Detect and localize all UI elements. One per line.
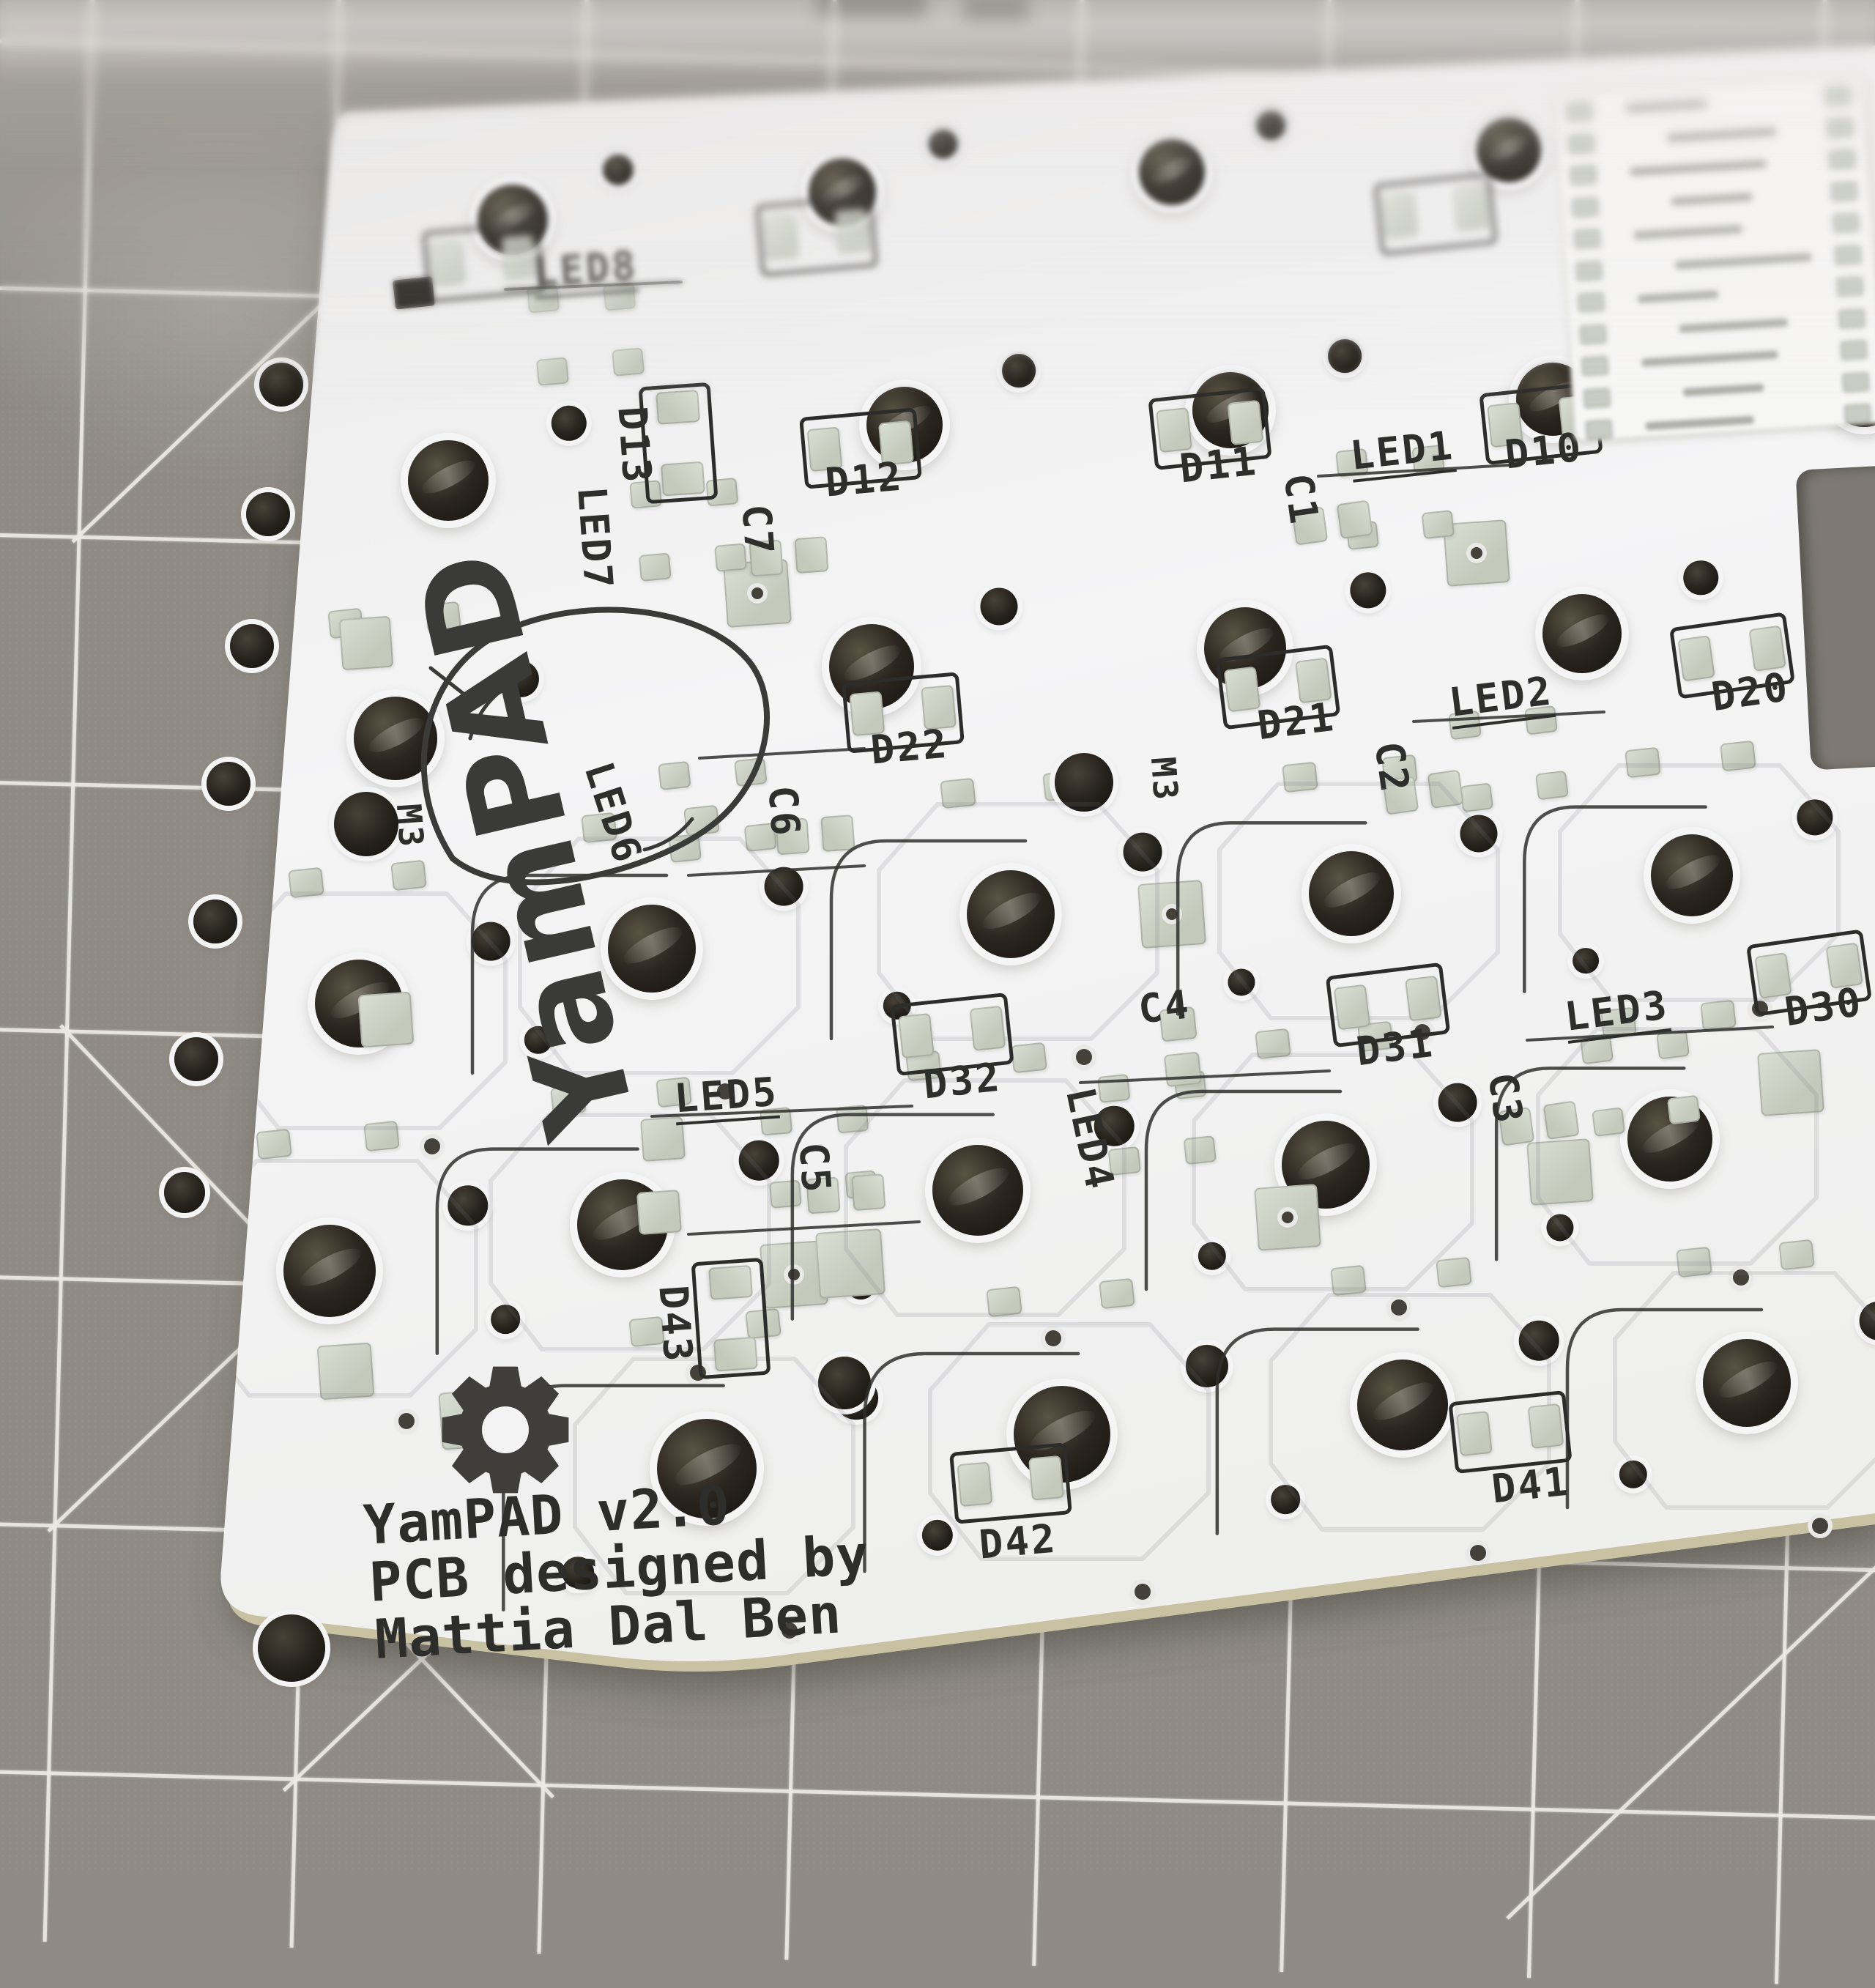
pro-micro-pad: [1840, 340, 1868, 360]
silkscreen-label-d32: D32: [921, 1058, 1003, 1105]
silkscreen-label-d30: D30: [1782, 982, 1865, 1032]
silkscreen-label-d43: D43: [653, 1284, 697, 1365]
silkscreen-label-c5: C5: [793, 1141, 836, 1196]
silkscreen-label-led4: LED4: [1060, 1084, 1120, 1194]
silkscreen-label-d31: D31: [1354, 1023, 1436, 1072]
pro-micro-pad: [1578, 292, 1605, 313]
silkscreen-label-c1: C1: [1277, 471, 1323, 528]
diode-pad: [656, 390, 700, 425]
pro-micro-illegible-text: [1634, 225, 1742, 240]
diode-pad: [1028, 1455, 1064, 1501]
pro-micro-illegible-text: [1641, 350, 1778, 366]
silkscreen-label-d41: D41: [1490, 1462, 1572, 1510]
diode-pad: [898, 1013, 935, 1058]
pro-micro-illegible-text: [1675, 253, 1811, 269]
pro-micro-pad: [1573, 229, 1601, 249]
silkscreen-label-led3: LED3: [1563, 985, 1672, 1044]
diode-pad: [762, 214, 798, 259]
diode-pad: [429, 240, 465, 286]
pro-micro-pad: [1844, 404, 1872, 424]
silkscreen-label-led8: LED8: [532, 246, 639, 300]
pcb-photo: { "scene": { "description": "White YamPA…: [0, 0, 1875, 1875]
pro-micro-pad: [1833, 212, 1860, 233]
diode-pad: [1334, 984, 1371, 1031]
pro-micro-pad: [1834, 245, 1862, 265]
silkscreen-label-c7: C7: [736, 503, 779, 558]
diode-pad: [1381, 193, 1418, 238]
pro-micro-pad: [1581, 356, 1609, 377]
pro-micro-pad: [1572, 196, 1600, 217]
silkscreen-label-d42: D42: [978, 1518, 1059, 1565]
pro-micro-pad: [1583, 387, 1611, 408]
silkscreen-label-c6: C6: [762, 785, 806, 839]
silkscreen-label-c4: C4: [1137, 984, 1192, 1029]
diode-footprint: [691, 1258, 771, 1379]
pro-micro-illegible-text: [1638, 290, 1718, 303]
pro-micro-illegible-text: [1646, 416, 1754, 431]
pro-micro-illegible-text: [1626, 100, 1707, 113]
pro-micro-pad: [1575, 260, 1603, 281]
pro-micro-pad: [1824, 86, 1852, 106]
pro-micro-pad: [1570, 165, 1597, 185]
silkscreen-label-d20: D20: [1709, 667, 1792, 717]
silkscreen-label-d13: D13: [612, 405, 656, 486]
diode-pad: [713, 1337, 758, 1372]
diode-pad: [1528, 1403, 1564, 1449]
pro-micro-illegible-text: [1671, 193, 1752, 206]
diode-pad: [661, 461, 705, 497]
diode-pad: [957, 1461, 992, 1507]
pro-micro-pad: [1842, 371, 1870, 392]
pro-micro-illegible-text: [1679, 318, 1787, 333]
diode-pad: [834, 208, 870, 253]
silkscreen-label-d11: D11: [1178, 442, 1260, 489]
silkscreen-label-d22: D22: [869, 724, 951, 770]
pro-micro-pad: [1579, 324, 1607, 344]
diode-pad: [970, 1006, 1006, 1051]
diode-pad: [1405, 976, 1442, 1022]
diode-pad: [1453, 185, 1490, 231]
silkscreen-label-led7: LED7: [571, 485, 618, 591]
diode-footprint: [422, 221, 545, 303]
diode-pad: [501, 234, 537, 280]
diode-footprint: [949, 1442, 1072, 1524]
pro-micro-illegible-text: [1630, 160, 1766, 176]
silkscreen-label-d21: D21: [1255, 697, 1337, 746]
pro-micro-pad: [1566, 101, 1594, 122]
silkscreen-label-led2: LED2: [1447, 671, 1556, 730]
pro-micro-pad: [1828, 149, 1856, 169]
silkscreen-label-c2: C2: [1368, 739, 1414, 796]
diode-footprint: [755, 195, 878, 277]
silkscreen-label-m3: M3: [392, 803, 428, 850]
diode-footprint: [1373, 172, 1497, 256]
silkscreen-label-d12: D12: [824, 456, 905, 502]
pro-micro-illegible-text: [1683, 383, 1764, 396]
diode-pad: [708, 1265, 753, 1300]
pro-micro-illegible-text: [1668, 127, 1776, 141]
pro-micro-pad: [1830, 181, 1858, 201]
silkscreen-label-led5: LED5: [673, 1072, 780, 1126]
pro-micro-pad: [1585, 419, 1613, 439]
pro-micro-footprint: [1553, 73, 1875, 442]
diode-pad: [1456, 1411, 1493, 1456]
pro-micro-pad: [1836, 276, 1864, 297]
silkscreen-label-led1: LED1: [1348, 426, 1457, 483]
silkscreen-label-d10: D10: [1503, 428, 1585, 475]
pro-micro-pad: [1838, 308, 1866, 329]
pro-micro-pad: [1827, 117, 1854, 138]
silkscreen-label-m3: M3: [1146, 756, 1183, 803]
pro-micro-pad: [1567, 133, 1595, 154]
silkscreen-label-c3: C3: [1482, 1070, 1528, 1127]
